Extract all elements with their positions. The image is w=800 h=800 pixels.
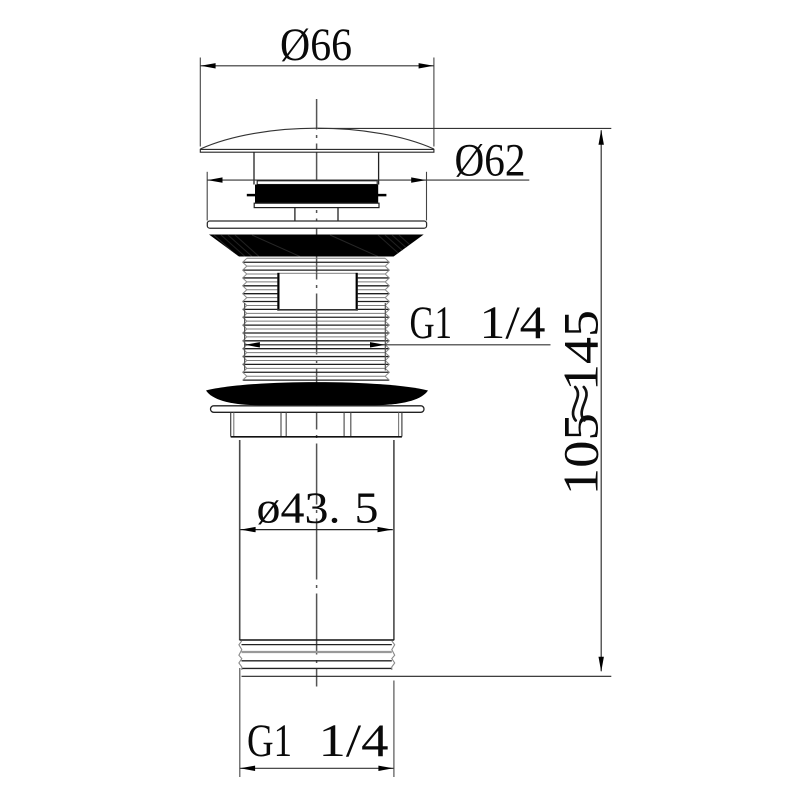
svg-text:Ø62: Ø62: [455, 135, 526, 187]
svg-text:G1: G1: [247, 715, 292, 767]
svg-text:Ø66: Ø66: [280, 19, 352, 71]
svg-text:5: 5: [355, 484, 379, 533]
svg-text:1/4: 1/4: [319, 715, 389, 767]
svg-text:105: 105: [553, 413, 609, 495]
svg-text:G1: G1: [410, 297, 453, 349]
svg-text:ø43.: ø43.: [257, 484, 341, 533]
svg-text:1/4: 1/4: [480, 297, 546, 349]
svg-text:145: 145: [553, 310, 609, 391]
